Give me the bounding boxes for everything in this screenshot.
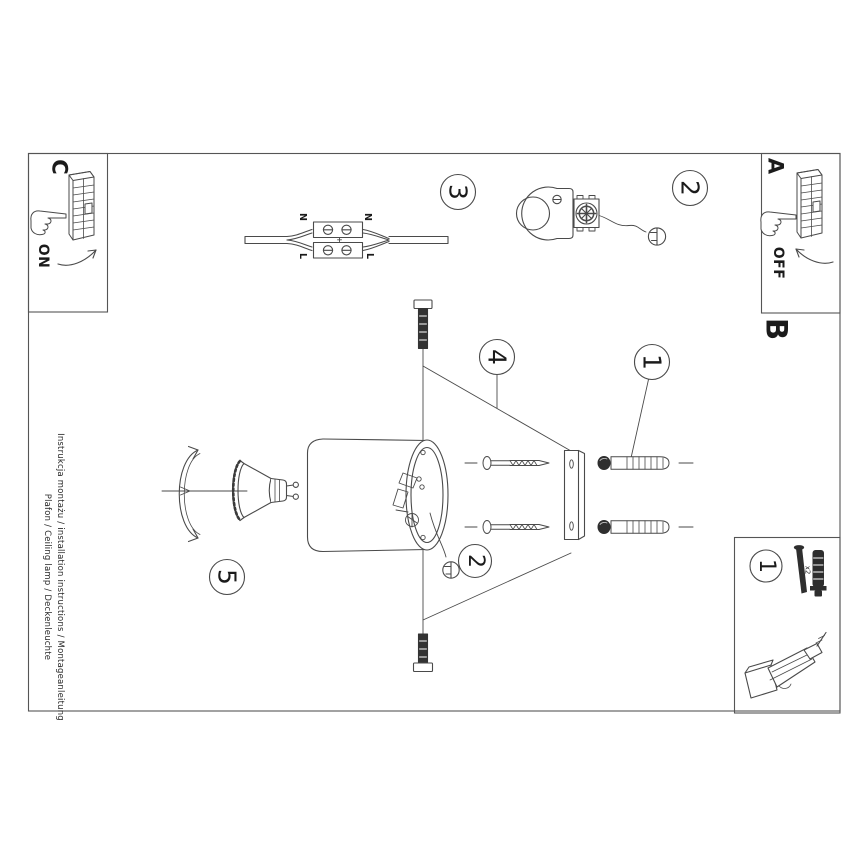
terminal-l-right-label: L bbox=[364, 253, 374, 259]
terminal-block-diagram bbox=[245, 222, 448, 258]
mounting-screw-icon bbox=[465, 457, 549, 534]
terminal-n-left-label: N bbox=[297, 213, 307, 221]
bolt-bottom-icon bbox=[414, 634, 433, 672]
step-4-number: 4 bbox=[485, 349, 510, 365]
on-arrow-icon bbox=[58, 250, 96, 265]
box-c-label: C bbox=[49, 159, 70, 174]
wall-anchor-icon bbox=[598, 456, 694, 534]
lamp-body bbox=[308, 439, 449, 557]
ground-screw-icon bbox=[443, 562, 459, 578]
step-3-number: 3 bbox=[446, 184, 471, 200]
page-frame bbox=[29, 154, 841, 712]
step-1-number: 1 bbox=[640, 354, 665, 370]
parts-box-number: 1 bbox=[755, 559, 777, 573]
parts-qty-label: x2 bbox=[804, 566, 811, 575]
pointing-hand-icon bbox=[761, 212, 796, 236]
pointing-hand-icon bbox=[31, 211, 66, 235]
drill-icon bbox=[745, 633, 826, 699]
box-a-label: A bbox=[765, 158, 786, 174]
gu10-bulb-icon bbox=[233, 461, 299, 521]
mounting-bracket bbox=[565, 451, 585, 540]
switch-on-label: ON bbox=[36, 244, 50, 269]
wall-switch-icon bbox=[797, 170, 822, 239]
leader-lines bbox=[423, 349, 649, 635]
wall-switch-icon bbox=[69, 172, 94, 241]
anchor-icon bbox=[810, 550, 827, 597]
step-5-number: 5 bbox=[215, 569, 240, 585]
switch-off-label: OFF bbox=[771, 247, 785, 280]
footer-line-2: Plafon / Ceiling lamp / Deckenleuchte bbox=[40, 433, 53, 721]
box-b-label: B bbox=[762, 318, 791, 340]
instruction-diagram-svg bbox=[0, 0, 868, 868]
terminal-l-left-label: L bbox=[297, 253, 307, 259]
ceiling-bracket-detail bbox=[517, 187, 666, 245]
footer-line-1: Instrukcja montażu / installation instru… bbox=[53, 433, 66, 721]
step-2b-number: 2 bbox=[464, 554, 486, 568]
bolt-top-icon bbox=[414, 300, 432, 349]
footer-text: Instrukcja montażu / installation instru… bbox=[40, 433, 66, 721]
terminal-n-right-label: N bbox=[362, 213, 372, 221]
step-2-number: 2 bbox=[678, 180, 703, 196]
ground-screw-icon bbox=[648, 228, 665, 245]
instruction-sheet: C A B ON OFF 3 2 4 1 2 5 1 N N L L x2 In… bbox=[0, 0, 868, 868]
off-arrow-icon bbox=[796, 249, 833, 263]
